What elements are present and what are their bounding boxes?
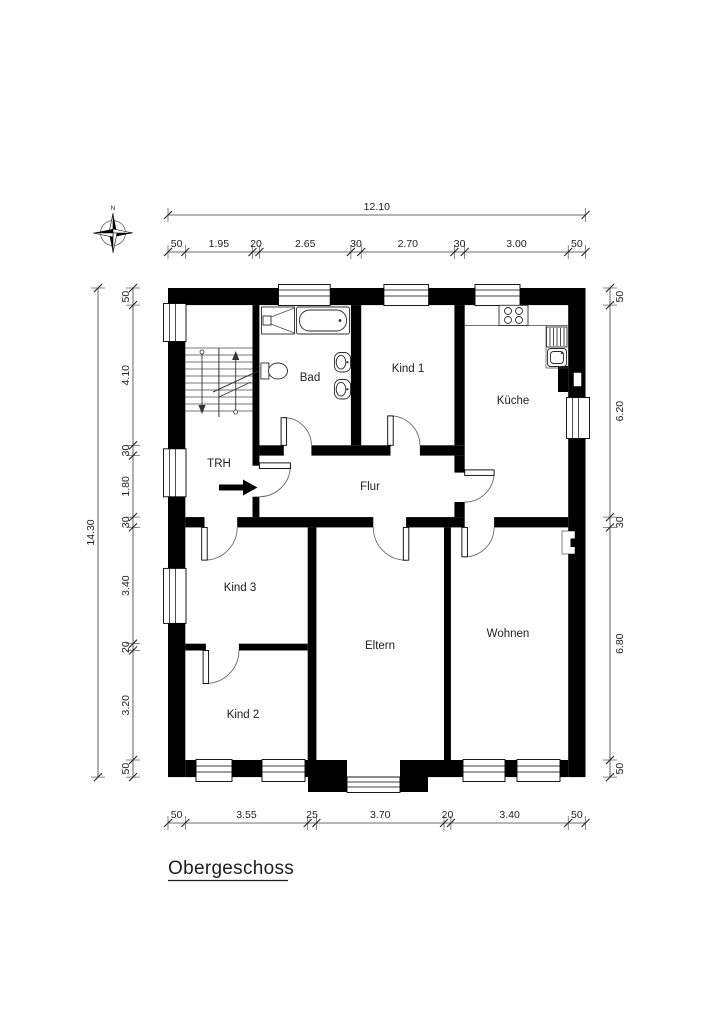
dimension-chain-top: 12.10 50 1.95 20 2.65 30 2.70 30 3.00 50 xyxy=(171,201,583,250)
bay-pier-right xyxy=(400,760,428,792)
dim-top-seg-0: 50 xyxy=(171,238,183,250)
room-label-trh: TRH xyxy=(207,458,231,470)
dim-right-seg-3: 6.80 xyxy=(614,633,626,654)
dim-left-seg-1: 4.10 xyxy=(120,365,132,386)
entry-arrow xyxy=(219,480,258,496)
dim-bottom-seg-5: 3.40 xyxy=(499,809,520,821)
drawing-title: Obergeschoss xyxy=(168,858,294,881)
window-kind1 xyxy=(384,285,429,306)
window-trh-lower xyxy=(164,449,187,497)
room-label-eltern: Eltern xyxy=(365,640,395,652)
window-eltern-bay xyxy=(347,777,400,793)
dim-bottom-seg-4: 20 xyxy=(442,809,454,821)
bay-opening xyxy=(347,760,400,777)
compass-rose: N xyxy=(93,205,133,253)
room-label-kind2: Kind 2 xyxy=(227,709,260,721)
stair-arrow-down xyxy=(198,405,205,414)
dim-bottom-seg-1: 3.55 xyxy=(236,809,257,821)
stair-arrow-up xyxy=(232,351,239,360)
title-text: Obergeschoss xyxy=(168,858,294,879)
door-eltern xyxy=(373,527,409,560)
window-kueche-north xyxy=(475,285,520,306)
floor-plan-drawing: N 12.10 50 1.95 20 2.65 30 2.70 30 3.00 … xyxy=(0,0,724,1024)
wall-kind3-eltern xyxy=(308,527,317,760)
bathroom-fixtures xyxy=(261,307,351,399)
dim-bottom-seg-2: 25 xyxy=(306,809,318,821)
window-wohnen-left xyxy=(463,760,505,782)
dimension-chain-bottom: 50 3.55 25 3.70 20 3.40 50 xyxy=(171,809,583,821)
window-kueche-east xyxy=(567,398,590,439)
dim-top-total: 12.10 xyxy=(364,201,390,213)
kitchen-sink xyxy=(546,326,568,369)
dim-left-seg-8: 50 xyxy=(120,763,132,775)
dim-top-seg-5: 2.70 xyxy=(398,238,419,250)
dim-left-seg-0: 50 xyxy=(120,291,132,303)
window-kind2-right xyxy=(262,760,305,782)
dimension-chain-left: 14.30 50 4.10 30 1.80 30 3.40 20 3.20 50 xyxy=(85,291,132,775)
bathtub xyxy=(297,307,350,334)
window-bad xyxy=(279,285,331,306)
bay-pier-left xyxy=(308,760,347,792)
wall-eltern-wohnen xyxy=(444,527,451,760)
flue-niche-kueche xyxy=(574,373,582,387)
dim-left-seg-4: 30 xyxy=(120,516,132,528)
door-kind1 xyxy=(388,416,420,445)
dim-bottom-seg-6: 50 xyxy=(571,809,583,821)
door-kind2 xyxy=(203,651,239,684)
room-label-bad: Bad xyxy=(300,372,320,384)
kitchen-fixtures xyxy=(465,305,569,368)
dim-left-seg-5: 3.40 xyxy=(120,575,132,596)
shower xyxy=(262,307,295,334)
wall-outer-north xyxy=(168,288,586,305)
door-wohnen xyxy=(462,527,494,556)
door-kueche xyxy=(465,470,494,502)
window-trh-upper xyxy=(164,304,187,342)
dim-top-seg-2: 20 xyxy=(250,238,262,250)
window-wohnen-right xyxy=(517,760,560,782)
door-bad xyxy=(281,418,311,446)
room-label-kind3: Kind 3 xyxy=(224,582,257,594)
dim-top-seg-6: 30 xyxy=(454,238,466,250)
window-kind2-left xyxy=(196,760,232,782)
window-kind3 xyxy=(164,568,187,623)
dim-left-seg-6: 20 xyxy=(120,641,132,653)
dim-top-seg-8: 50 xyxy=(571,238,583,250)
dim-right-seg-2: 30 xyxy=(614,516,626,528)
room-label-flur: Flur xyxy=(360,481,380,493)
compass-ray-west xyxy=(93,229,113,233)
dim-top-seg-1: 1.95 xyxy=(209,238,230,250)
sink-2 xyxy=(335,380,351,400)
dim-bottom-seg-3: 3.70 xyxy=(370,809,391,821)
dim-left-seg-7: 3.20 xyxy=(120,695,132,716)
dim-right-seg-1: 6.20 xyxy=(614,401,626,422)
dim-bottom-seg-0: 50 xyxy=(171,809,183,821)
dim-top-seg-4: 30 xyxy=(350,238,362,250)
wall-outer-west xyxy=(168,288,185,777)
dim-left-total: 14.30 xyxy=(85,519,97,545)
door-kind3 xyxy=(202,527,238,560)
chimney-block-kueche xyxy=(558,366,568,392)
room-label-kind1: Kind 1 xyxy=(392,363,425,375)
dim-left-seg-2: 30 xyxy=(120,445,132,457)
dim-top-seg-3: 2.65 xyxy=(295,238,316,250)
stove xyxy=(499,305,528,325)
dim-right-seg-4: 50 xyxy=(614,763,626,775)
staircase xyxy=(185,348,258,417)
dim-top-seg-7: 3.00 xyxy=(506,238,527,250)
room-label-wohnen: Wohnen xyxy=(487,628,530,640)
dim-right-seg-0: 50 xyxy=(614,291,626,303)
dimension-chain-right: 50 6.20 30 6.80 50 xyxy=(614,291,626,775)
dim-left-seg-3: 1.80 xyxy=(120,476,132,497)
toilet xyxy=(261,363,288,379)
door-trh xyxy=(259,463,290,497)
sink-1 xyxy=(335,353,351,373)
room-label-kueche: Küche xyxy=(497,395,530,407)
compass-north-label: N xyxy=(111,205,116,212)
